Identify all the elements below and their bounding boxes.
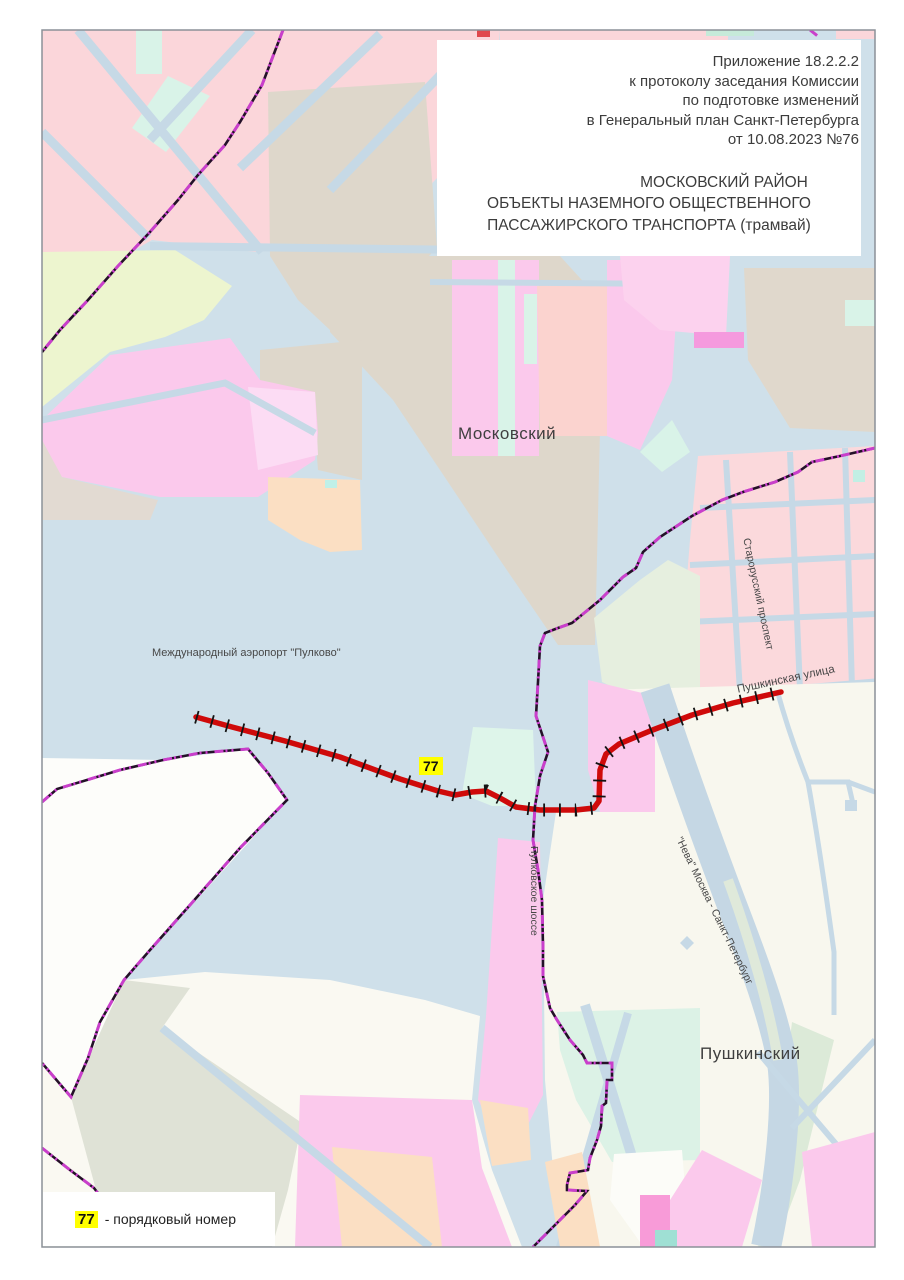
airport-label: Международный аэропорт "Пулково" — [152, 647, 341, 659]
title-line: по подготовке изменений — [437, 91, 859, 111]
district-label-moskovsky: Московский — [458, 424, 556, 444]
map-title-line: ОБЪЕКТЫ НАЗЕМНОГО ОБЩЕСТВЕННОГО — [437, 193, 861, 215]
legend-route-number-symbol: 77 — [75, 1211, 98, 1228]
title-line: к протоколу заседания Комиссии — [437, 72, 859, 92]
district-label-pushkinsky: Пушкинский — [700, 1044, 801, 1064]
map-title: МОСКОВСКИЙ РАЙОН ОБЪЕКТЫ НАЗЕМНОГО ОБЩЕС… — [437, 172, 861, 237]
title-annotation: Приложение 18.2.2.2 к протоколу заседани… — [437, 40, 861, 150]
title-line: от 10.08.2023 №76 — [437, 130, 859, 150]
map-title-line: МОСКОВСКИЙ РАЙОН — [437, 172, 861, 194]
title-line: в Генеральный план Санкт-Петербурга — [437, 111, 859, 131]
map-title-line: ПАССАЖИРСКОГО ТРАНСПОРТА (трамвай) — [437, 215, 861, 237]
title-line: Приложение 18.2.2.2 — [437, 52, 859, 72]
street-label-pulkovskoe: Пулковское шоссе — [528, 846, 540, 936]
document-page: Московский Пушкинский Международный аэро… — [0, 0, 904, 1280]
route-number-label: 77 — [419, 757, 443, 775]
title-block: Приложение 18.2.2.2 к протоколу заседани… — [437, 40, 861, 256]
legend-description: - порядковый номер — [105, 1211, 236, 1227]
legend: 77 - порядковый номер — [43, 1192, 275, 1246]
